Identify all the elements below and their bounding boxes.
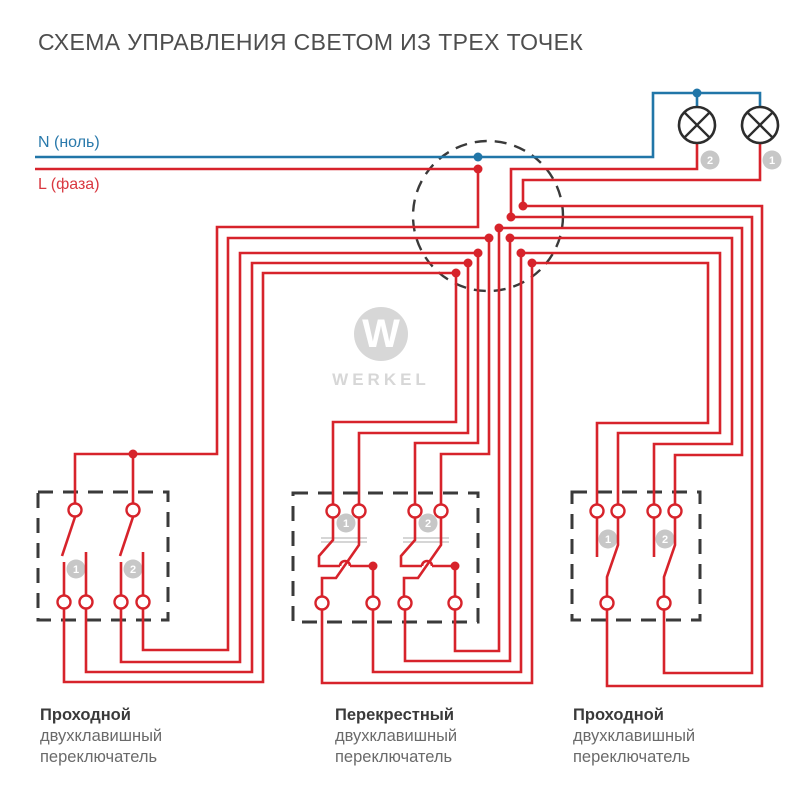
junction-dot bbox=[519, 202, 528, 211]
terminal bbox=[353, 505, 366, 518]
terminal bbox=[669, 505, 682, 518]
terminal bbox=[409, 505, 422, 518]
label-switch-middle: Перекрестный двухклавишный переключатель bbox=[335, 705, 565, 768]
terminal bbox=[435, 505, 448, 518]
switch-right-type: Проходной bbox=[573, 705, 800, 726]
werkel-logo-letter: W bbox=[362, 312, 400, 356]
switch-middle-type: Перекрестный bbox=[335, 705, 565, 726]
key-badge-number: 1 bbox=[343, 518, 349, 530]
neutral-wire bbox=[35, 93, 760, 157]
terminal bbox=[58, 596, 71, 609]
label-switch-left: Проходной двухклавишный переключатель bbox=[40, 705, 270, 768]
werkel-logo-mark: W bbox=[354, 307, 408, 361]
junction-dot bbox=[506, 234, 515, 243]
wiring-svg: 12121221 bbox=[0, 0, 800, 800]
junction-dot bbox=[129, 450, 138, 459]
terminal bbox=[648, 505, 661, 518]
lamp-badge-number: 1 bbox=[769, 155, 775, 167]
label-switch-right: Проходной двухклавишный переключатель bbox=[573, 705, 800, 768]
junction-dot bbox=[485, 234, 494, 243]
phase-wire bbox=[455, 228, 742, 651]
terminal bbox=[449, 597, 462, 610]
junction-dot bbox=[369, 562, 378, 571]
neutral-junction-dot bbox=[693, 89, 702, 98]
key-badge-number: 1 bbox=[73, 564, 79, 576]
junction-dot bbox=[495, 224, 504, 233]
neutral-junction-dot bbox=[474, 153, 483, 162]
switch-left-line2: двухклавишный bbox=[40, 726, 270, 747]
switch-internal-wire bbox=[350, 566, 373, 596]
switch-right-line3: переключатель bbox=[573, 747, 800, 768]
junction-dot bbox=[517, 249, 526, 258]
key-badge-number: 1 bbox=[605, 534, 611, 546]
terminal bbox=[601, 597, 614, 610]
junction-dot bbox=[452, 269, 461, 278]
lamp-badge-number: 2 bbox=[707, 155, 713, 167]
key-badge-number: 2 bbox=[130, 564, 136, 576]
junction-dot bbox=[474, 165, 483, 174]
terminal bbox=[367, 597, 380, 610]
terminal bbox=[612, 505, 625, 518]
junction-dot bbox=[451, 562, 460, 571]
terminal bbox=[80, 596, 93, 609]
terminal bbox=[115, 596, 128, 609]
junction-dot bbox=[528, 259, 537, 268]
switch-middle-line2: двухклавишный bbox=[335, 726, 565, 747]
switch-middle-line3: переключатель bbox=[335, 747, 565, 768]
junction-dot bbox=[507, 213, 516, 222]
terminal bbox=[137, 596, 150, 609]
werkel-logo-text: WERKEL bbox=[331, 370, 431, 390]
junction-dot bbox=[474, 249, 483, 258]
switch-right-line2: двухклавишный bbox=[573, 726, 800, 747]
key-badge-number: 2 bbox=[425, 518, 431, 530]
diagram-page: СХЕМА УПРАВЛЕНИЯ СВЕТОМ ИЗ ТРЕХ ТОЧЕК N … bbox=[0, 0, 800, 800]
terminal bbox=[69, 504, 82, 517]
switch-left-type: Проходной bbox=[40, 705, 270, 726]
terminal bbox=[327, 505, 340, 518]
switch-internal-wire bbox=[432, 566, 455, 596]
switch-left-line3: переключатель bbox=[40, 747, 270, 768]
switch-internal-wire bbox=[62, 517, 75, 556]
phase-wire bbox=[523, 143, 762, 686]
terminal bbox=[399, 597, 412, 610]
werkel-logo: W WERKEL bbox=[331, 307, 431, 390]
terminal bbox=[658, 597, 671, 610]
terminal bbox=[316, 597, 329, 610]
switch-internal-wire bbox=[120, 517, 133, 556]
key-badge-number: 2 bbox=[662, 534, 668, 546]
phase-wire bbox=[511, 143, 752, 673]
terminal bbox=[127, 504, 140, 517]
terminal bbox=[591, 505, 604, 518]
junction-dot bbox=[464, 259, 473, 268]
